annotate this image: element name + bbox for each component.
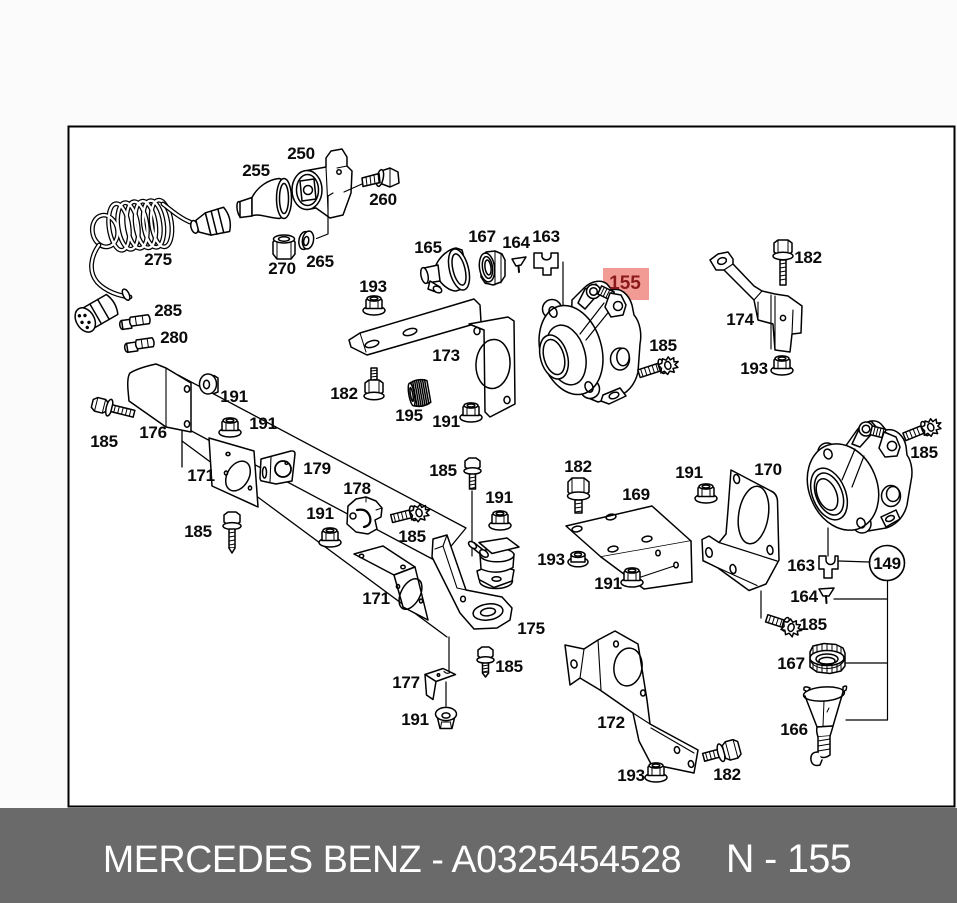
svg-text:149: 149 <box>873 554 900 573</box>
svg-text:191: 191 <box>401 710 428 729</box>
svg-text:191: 191 <box>485 488 512 507</box>
svg-text:178: 178 <box>343 479 370 498</box>
svg-text:167: 167 <box>777 654 804 673</box>
svg-text:185: 185 <box>649 336 676 355</box>
svg-text:174: 174 <box>726 310 754 329</box>
svg-text:N - 155: N - 155 <box>726 837 851 881</box>
svg-text:166: 166 <box>780 720 807 739</box>
svg-text:280: 280 <box>160 328 187 347</box>
svg-text:165: 165 <box>414 238 441 257</box>
svg-text:182: 182 <box>330 384 357 403</box>
svg-text:193: 193 <box>359 277 386 296</box>
svg-text:171: 171 <box>187 466 214 485</box>
svg-text:176: 176 <box>139 423 166 442</box>
svg-text:193: 193 <box>740 359 767 378</box>
svg-text:164: 164 <box>790 587 818 606</box>
svg-text:164: 164 <box>502 233 530 252</box>
svg-text:173: 173 <box>432 346 459 365</box>
svg-text:179: 179 <box>303 459 330 478</box>
svg-text:185: 185 <box>429 461 456 480</box>
svg-text:191: 191 <box>220 387 247 406</box>
svg-text:182: 182 <box>794 248 821 267</box>
svg-text:172: 172 <box>597 713 624 732</box>
svg-text:250: 250 <box>287 144 314 163</box>
svg-text:177: 177 <box>392 673 419 692</box>
svg-text:191: 191 <box>675 463 702 482</box>
svg-text:193: 193 <box>537 550 564 569</box>
svg-text:182: 182 <box>713 765 740 784</box>
svg-text:255: 255 <box>242 161 269 180</box>
svg-text:185: 185 <box>910 443 937 462</box>
svg-text:191: 191 <box>594 574 621 593</box>
svg-text:185: 185 <box>90 432 117 451</box>
svg-text:MERCEDES BENZ - A0325454528: MERCEDES BENZ - A0325454528 <box>103 838 681 880</box>
svg-text:185: 185 <box>184 522 211 541</box>
svg-text:191: 191 <box>249 414 276 433</box>
svg-text:170: 170 <box>754 460 781 479</box>
svg-text:191: 191 <box>306 504 333 523</box>
svg-text:285: 285 <box>154 301 181 320</box>
svg-text:270: 270 <box>268 259 295 278</box>
svg-text:185: 185 <box>398 527 425 546</box>
svg-text:169: 169 <box>622 485 649 504</box>
svg-text:265: 265 <box>306 252 333 271</box>
svg-text:175: 175 <box>517 619 544 638</box>
svg-text:185: 185 <box>799 615 826 634</box>
svg-text:193: 193 <box>617 766 644 785</box>
svg-text:163: 163 <box>532 227 559 246</box>
svg-text:163: 163 <box>787 556 814 575</box>
svg-text:155: 155 <box>609 273 641 294</box>
svg-text:182: 182 <box>564 457 591 476</box>
svg-text:171: 171 <box>362 589 389 608</box>
svg-text:260: 260 <box>369 190 396 209</box>
svg-text:191: 191 <box>432 412 459 431</box>
svg-text:275: 275 <box>144 250 171 269</box>
svg-text:195: 195 <box>395 406 422 425</box>
svg-text:185: 185 <box>495 657 522 676</box>
svg-text:167: 167 <box>468 227 495 246</box>
